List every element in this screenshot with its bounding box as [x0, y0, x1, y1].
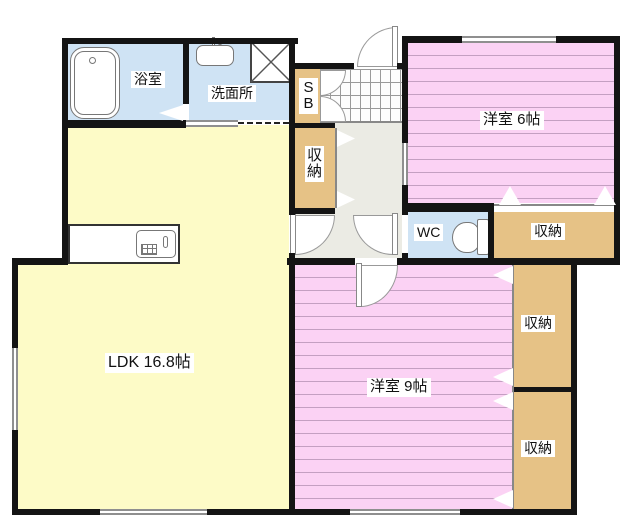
sliding-door-washroom — [186, 120, 238, 127]
wall — [289, 208, 335, 214]
wall — [488, 212, 494, 258]
wall — [62, 38, 298, 44]
wall — [62, 38, 68, 265]
label-hall-closet: 収納 — [305, 146, 324, 182]
kitchen-sink-grate — [141, 244, 157, 255]
door-leaf-wc — [392, 213, 398, 255]
window-marker — [462, 36, 556, 43]
window-marker — [350, 509, 460, 515]
label-wc-closet: 収納 — [531, 223, 565, 240]
label-bedroom9-closet-lower: 収納 — [521, 440, 555, 457]
label-ldk: LDK 16.8帖 — [105, 353, 194, 373]
label-bathroom: 浴室 — [131, 71, 165, 88]
door-leaf-entrance — [392, 26, 398, 67]
wall — [614, 36, 620, 265]
wall — [12, 509, 577, 515]
wall — [62, 120, 186, 128]
window-marker — [100, 509, 207, 515]
door-leaf-bedroom9 — [356, 263, 362, 307]
wall — [289, 38, 295, 128]
sink-icon — [196, 45, 234, 66]
washing-machine-icon — [250, 41, 292, 83]
wall — [402, 36, 408, 143]
wall — [512, 387, 577, 392]
door-leaf-ldk — [290, 213, 296, 255]
toilet-icon — [452, 222, 480, 253]
room-ldk-lower — [18, 263, 289, 511]
wall — [397, 258, 620, 265]
wall — [289, 123, 295, 215]
door-swing-entrance — [357, 27, 397, 67]
wall — [289, 253, 295, 515]
label-bedroom6: 洋室 6帖 — [480, 111, 544, 130]
window-marker — [12, 348, 18, 430]
wall — [295, 123, 335, 128]
label-bedroom9: 洋室 9帖 — [367, 378, 431, 397]
bathtub-drain — [89, 57, 96, 64]
kitchen-faucet — [163, 236, 168, 248]
closet-door-line — [512, 265, 514, 509]
wall — [402, 203, 494, 212]
label-bedroom9-closet-upper: 収納 — [521, 315, 555, 332]
wall — [289, 63, 354, 69]
label-washroom: 洗面所 — [208, 85, 256, 102]
closet-door-line — [335, 128, 337, 208]
wall — [12, 258, 68, 265]
wall — [183, 38, 189, 104]
floorplan-canvas: 浴室 洗面所 SB 収納 洋室 6帖 WC 収納 LDK 16.8帖 洋室 9帖… — [0, 0, 640, 529]
opening-dashed-line — [238, 122, 289, 124]
wall — [287, 258, 355, 265]
label-wc: WC — [414, 224, 443, 241]
sliding-door-bedroom6 — [402, 143, 408, 185]
label-shoe-box: SB — [299, 78, 318, 114]
